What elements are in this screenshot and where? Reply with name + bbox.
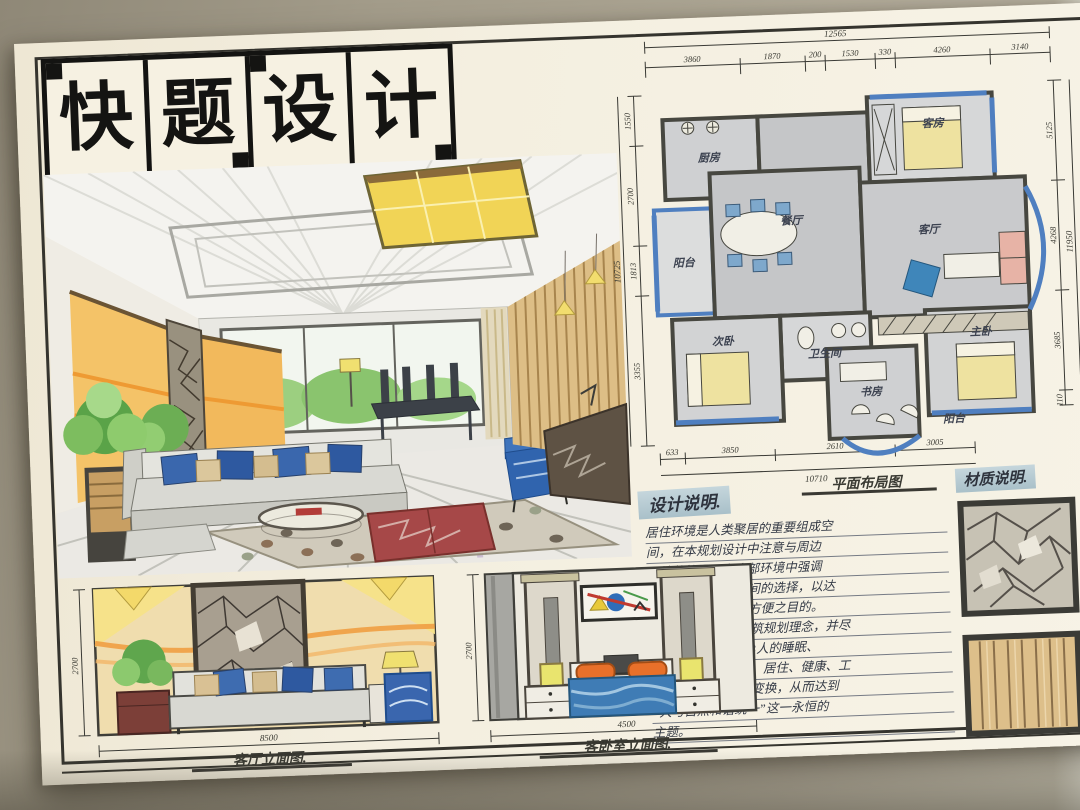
- material-swatches: [956, 495, 1080, 750]
- living-elevation-width: 8500: [260, 732, 279, 743]
- dim-left-4: 3355: [632, 363, 643, 381]
- room-label-dining: 餐厅: [780, 214, 804, 228]
- dim-left-2: 2700: [625, 187, 636, 205]
- dim-left-1: 1550: [622, 112, 633, 130]
- plan-dimensions-top: 12565 3860 1870 200 1530 330 4260 3140: [644, 20, 1050, 78]
- dim-right-3: 3685: [1052, 331, 1063, 349]
- skylight-panel: [364, 160, 537, 248]
- title-char: 快: [46, 60, 152, 176]
- photo-background: 快 题 设 计: [0, 0, 1080, 810]
- living-room-perspective-drawing: [41, 153, 634, 579]
- room-label-living: 客厅: [918, 223, 942, 237]
- dim-total-left: 10725: [612, 260, 623, 283]
- living-elevation-caption: 客厅立面图.: [191, 748, 352, 771]
- dim-bottom-1: 633: [666, 447, 679, 457]
- title-char: 设: [249, 52, 355, 168]
- dim-top-1: 3860: [682, 54, 701, 65]
- dim-bottom-2: 3850: [720, 444, 739, 455]
- stone-mosaic-swatch: [960, 500, 1076, 614]
- room-label-balcony-left: 阳台: [673, 256, 696, 270]
- dim-top-7: 3140: [1010, 41, 1029, 52]
- title-char: 计: [351, 48, 452, 164]
- plan-dimensions-right: 5125 4268 3685 110 11950: [1042, 80, 1080, 407]
- dim-left-3: 1813: [628, 263, 639, 280]
- living-room-elevation-drawing: 2700 8500 客厅立面图.: [65, 563, 462, 778]
- title-char-2: 题: [160, 76, 237, 153]
- dim-top-4: 1530: [841, 48, 859, 59]
- room-label-second-bedroom: 次卧: [712, 335, 735, 349]
- title-char-4: 计: [363, 68, 440, 145]
- living-elevation-height: 2700: [70, 657, 81, 675]
- dim-total-top: 12565: [824, 28, 847, 39]
- bedroom-elevation-caption-text: 客卧室立面图.: [583, 735, 671, 755]
- plan-dimensions-left: 1550 2700 1813 3355 10725: [605, 96, 654, 447]
- living-elevation-caption-text: 客厅立面图.: [233, 749, 307, 769]
- room-label-guest-room: 客房: [921, 116, 945, 130]
- dim-top-2: 1870: [763, 51, 781, 62]
- bedroom-elevation-width: 4500: [617, 719, 636, 730]
- material-notes-heading: 材质说明.: [955, 464, 1036, 492]
- title-char-3: 设: [261, 72, 338, 149]
- room-label-master-bedroom: 主卧: [970, 325, 993, 339]
- dim-top-5: 330: [877, 46, 892, 57]
- dim-bottom-4: 3005: [925, 437, 943, 448]
- design-notes-heading: 设计说明.: [637, 486, 731, 520]
- board-title: 快 题 设 计: [41, 43, 457, 181]
- artwork-above-bed: [581, 584, 656, 621]
- bedroom-elevation-height: 2700: [463, 642, 474, 660]
- dim-right-2: 4268: [1048, 226, 1059, 244]
- wood-strip-swatch: [966, 634, 1080, 734]
- room-label-bathroom: 卫生间: [808, 346, 843, 360]
- dim-bottom-3: 2610: [826, 440, 844, 451]
- material-notes-section: 材质说明.: [955, 462, 1080, 755]
- floor-plan-drawing: 12565 3860 1870 200 1530 330 4260 3140 1…: [599, 9, 1080, 505]
- bedroom-elevation-drawing: 2700 4500 客卧室立面图.: [462, 552, 769, 763]
- room-label-study: 书房: [860, 385, 884, 399]
- dim-total-right: 11950: [1064, 230, 1075, 253]
- dim-right-1: 5125: [1044, 122, 1055, 139]
- dim-top-6: 4260: [933, 44, 951, 55]
- dim-right-4: 110: [1054, 393, 1064, 406]
- room-label-balcony-bottom: 阳台: [943, 412, 966, 426]
- bedroom-elevation-caption: 客卧室立面图.: [539, 734, 718, 758]
- dim-top-3: 200: [808, 49, 822, 60]
- title-char: 题: [147, 56, 253, 172]
- title-char-1: 快: [58, 80, 135, 157]
- room-label-kitchen: 厨房: [697, 151, 722, 165]
- bed: [568, 653, 676, 717]
- presentation-board: 快 题 设 计: [14, 2, 1080, 785]
